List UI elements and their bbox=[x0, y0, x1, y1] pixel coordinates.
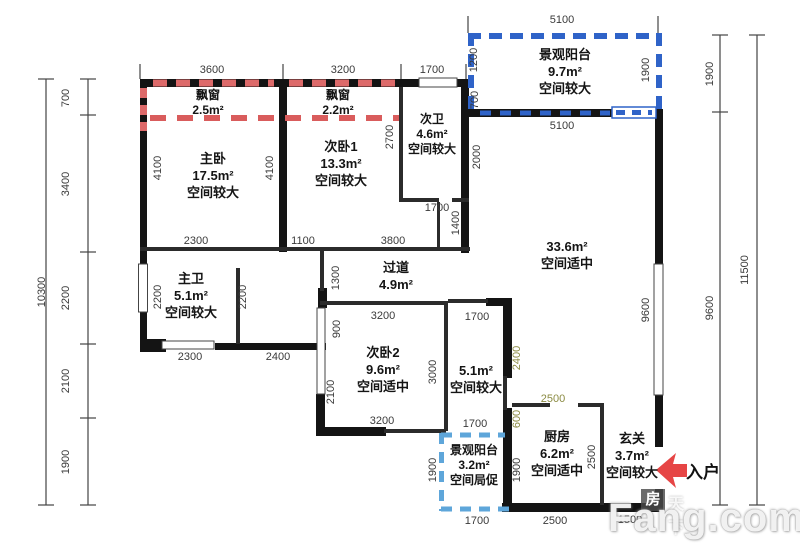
dim-label: 1900 bbox=[704, 62, 716, 86]
dim-label: 1700 bbox=[463, 418, 487, 430]
dim-label: 2300 bbox=[178, 351, 202, 363]
dim-label: 2400 bbox=[266, 351, 290, 363]
dim-label: 700 bbox=[469, 91, 481, 109]
room-label: 景观阳台9.7m²空间较大 bbox=[539, 46, 591, 97]
dim-label: 2200 bbox=[60, 286, 72, 310]
dim-label: 3400 bbox=[60, 172, 72, 196]
dim-label: 3200 bbox=[371, 310, 395, 322]
dim-label: 11500 bbox=[739, 255, 751, 285]
dim-label: 2000 bbox=[471, 145, 483, 169]
dim-label: 3200 bbox=[370, 415, 394, 427]
room-label: 飘窗2.2m² bbox=[322, 88, 353, 118]
room-label: 次卧113.3m²空间较大 bbox=[315, 138, 367, 189]
dim-label: 1100 bbox=[291, 235, 315, 247]
floorplan-canvas: 入户 飘窗2.5m²飘窗2.2m²主卧17.5m²空间较大次卧113.3m²空间… bbox=[0, 0, 800, 559]
room-label: 玄关3.7m²空间较大 bbox=[606, 430, 658, 481]
room-label: 次卧29.6m²空间适中 bbox=[357, 344, 409, 395]
room-label: 次卫4.6m²空间较大 bbox=[408, 112, 456, 157]
dim-label: 1700 bbox=[420, 64, 444, 76]
bay-window-layer bbox=[144, 83, 400, 131]
dim-label: 3600 bbox=[200, 64, 224, 76]
entry-arrow-icon bbox=[656, 453, 687, 488]
dim-label: 2200 bbox=[237, 285, 249, 309]
dim-label: 1900 bbox=[427, 458, 439, 482]
dim-label: 5100 bbox=[550, 14, 574, 26]
dim-label: 10300 bbox=[36, 277, 48, 308]
dim-label: 5100 bbox=[550, 120, 574, 132]
dim-label: 9600 bbox=[704, 296, 716, 320]
dim-label: 1700 bbox=[465, 311, 489, 323]
room-label: 33.6m²空间适中 bbox=[541, 238, 593, 272]
room-label: 飘窗2.5m² bbox=[192, 88, 223, 118]
dim-label: 2500 bbox=[541, 393, 565, 405]
dim-label: 1900 bbox=[640, 58, 652, 82]
dim-label: 1400 bbox=[450, 211, 462, 235]
room-label: 5.1m²空间较大 bbox=[450, 362, 502, 396]
dim-label: 9600 bbox=[640, 298, 652, 322]
dim-label: 2500 bbox=[586, 445, 598, 469]
dim-label: 1700 bbox=[465, 515, 489, 527]
dim-label: 3800 bbox=[381, 235, 405, 247]
dim-label: 2400 bbox=[511, 346, 523, 370]
entry-label: 入户 bbox=[686, 458, 720, 483]
dim-label: 700 bbox=[60, 89, 72, 107]
room-label: 主卧17.5m²空间较大 bbox=[187, 150, 239, 201]
room-label: 厨房6.2m²空间适中 bbox=[531, 428, 583, 479]
dim-label: 2300 bbox=[184, 235, 208, 247]
room-label: 过道4.9m² bbox=[379, 259, 413, 293]
dim-label: 4100 bbox=[264, 156, 276, 180]
dim-label: 600 bbox=[511, 410, 523, 428]
dim-label: 1500 bbox=[618, 514, 642, 526]
dim-label: 900 bbox=[331, 320, 343, 338]
dim-label: 1300 bbox=[330, 266, 342, 290]
dim-label: 2100 bbox=[325, 380, 337, 404]
dim-label: 3000 bbox=[427, 360, 439, 384]
dim-label: 4100 bbox=[152, 156, 164, 180]
dim-label: 2500 bbox=[543, 515, 567, 527]
dim-label: 3200 bbox=[331, 64, 355, 76]
dim-label: 2100 bbox=[60, 369, 72, 393]
dim-label: 1700 bbox=[425, 202, 449, 214]
dim-label: 1900 bbox=[60, 450, 72, 474]
dim-label: 2700 bbox=[384, 125, 396, 149]
room-label: 主卫5.1m²空间较大 bbox=[165, 270, 217, 321]
room-label: 景观阳台3.2m²空间局促 bbox=[450, 443, 498, 488]
dim-label: 1200 bbox=[468, 48, 480, 72]
dim-label: 1900 bbox=[511, 458, 523, 482]
dim-label: 2200 bbox=[152, 285, 164, 309]
